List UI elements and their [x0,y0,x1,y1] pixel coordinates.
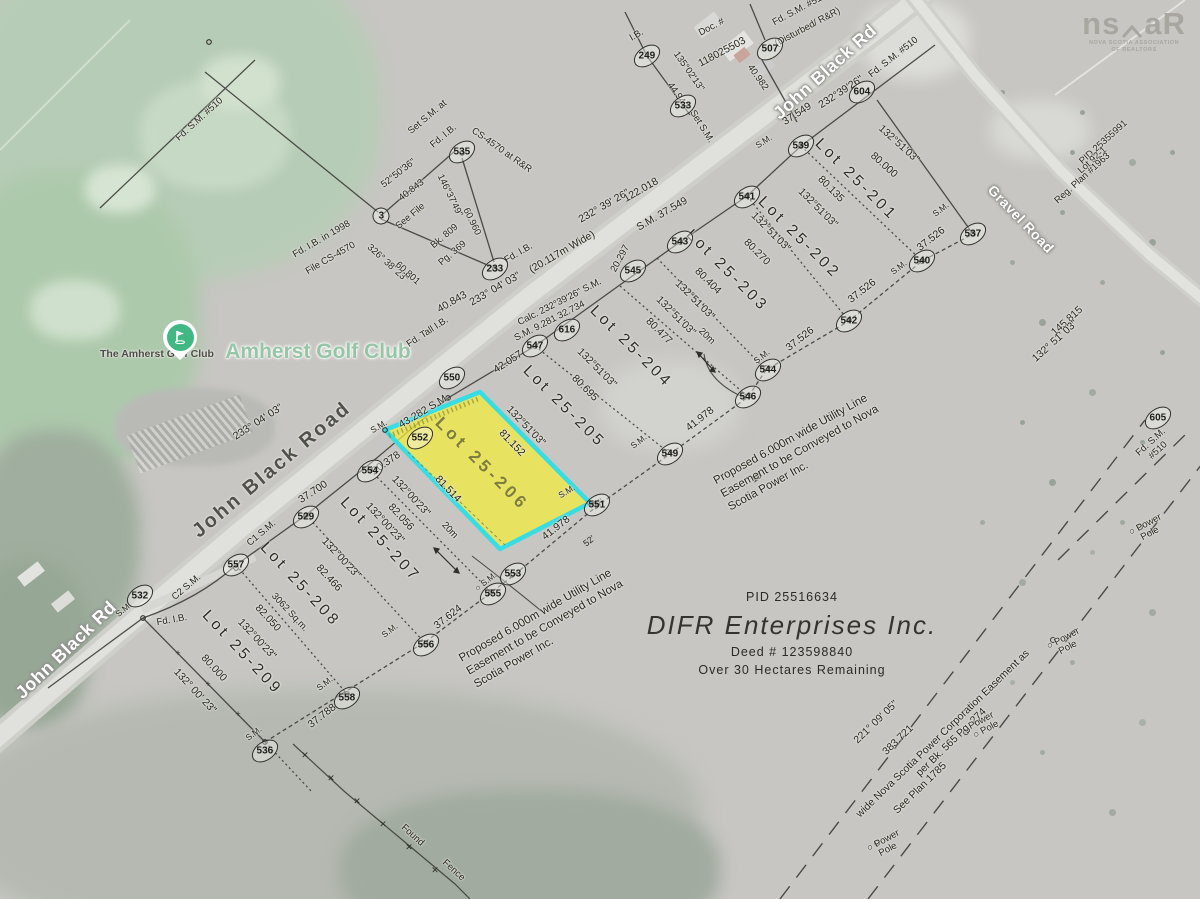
station-number: 552 [412,433,429,444]
golf-icon [167,324,194,351]
golf-club-map-pin[interactable] [163,320,197,354]
station-546: 546 [731,381,766,413]
station-number: 543 [672,237,689,248]
station-604: 604 [845,76,880,108]
station-533: 533 [666,90,701,122]
station-number: 549 [662,449,679,460]
station-number: 544 [760,365,777,376]
station-537: 537 [956,218,991,250]
station-507: 507 [753,33,788,65]
logo-ns: ns [1082,8,1120,39]
survey-plan-map: Doc. #118025503Fd. S.M. #510(Disturbed/ … [0,0,1200,899]
owner-info-block: PID 25516634 DIFR Enterprises Inc. Deed … [632,590,952,677]
owner-pid: PID 25516634 [632,590,952,604]
station-532: 532 [123,580,158,612]
station-number: 616 [559,325,576,336]
station-layer: 2495075336045353233539537541543545616547… [0,0,1200,899]
station-number: 551 [589,500,606,511]
station-number: 507 [762,44,779,55]
station-249: 249 [630,40,665,72]
station-number: 554 [362,466,379,477]
station-536: 536 [248,735,283,767]
station-539: 539 [784,130,819,162]
station-233: 233 [478,253,513,285]
station-540: 540 [905,245,940,277]
station-number: 541 [739,192,756,203]
station-number: 605 [1150,413,1167,424]
station-number: 542 [841,316,858,327]
station-number: 550 [444,373,461,384]
station-number: 529 [298,512,315,523]
station-number: 556 [418,640,435,651]
station-605: 605 [1141,402,1176,434]
logo-subtitle-1: NOVA SCOTIA ASSOCIATION [1082,40,1186,46]
station-number: 546 [740,392,757,403]
owner-name: DIFR Enterprises Inc. [632,610,952,641]
station-number: 540 [914,256,931,267]
station-number: 3 [378,211,384,222]
station-number: 545 [625,266,642,277]
logo-roof-icon [1121,23,1143,39]
station-551: 551 [580,489,615,521]
station-number: 604 [854,87,871,98]
owner-note: Over 30 Hectares Remaining [632,663,952,677]
station-557: 557 [219,549,254,581]
station-556: 556 [409,629,444,661]
logo-subtitle-2: OF REALTORS [1082,47,1186,53]
station-number: 249 [639,51,656,62]
station-number: 547 [527,341,544,352]
station-3: 3 [369,204,393,228]
station-547: 547 [518,330,553,362]
logo-ar: aR [1144,8,1186,39]
station-554: 554 [353,455,388,487]
station-549: 549 [653,438,688,470]
nsar-logo: ns aR NOVA SCOTIA ASSOCIATION OF REALTOR… [1082,8,1186,53]
station-number: 233 [487,264,504,275]
station-542: 542 [832,305,867,337]
station-number: 539 [793,141,810,152]
station-number: 535 [454,147,471,158]
station-544: 544 [751,354,786,386]
station-number: 557 [228,560,245,571]
station-number: 558 [339,693,356,704]
station-number: 533 [675,101,692,112]
station-number: 537 [965,229,982,240]
owner-deed: Deed # 123598840 [632,645,952,659]
station-550: 550 [435,362,470,394]
station-552: 552 [403,422,438,454]
station-545: 545 [616,255,651,287]
station-541: 541 [730,181,765,213]
station-558: 558 [330,682,365,714]
station-number: 555 [485,589,502,600]
station-535: 535 [445,136,480,168]
station-number: 532 [132,591,149,602]
station-529: 529 [289,501,324,533]
station-543: 543 [663,226,698,258]
station-number: 553 [505,569,522,580]
station-number: 536 [257,746,274,757]
station-616: 616 [550,314,585,346]
